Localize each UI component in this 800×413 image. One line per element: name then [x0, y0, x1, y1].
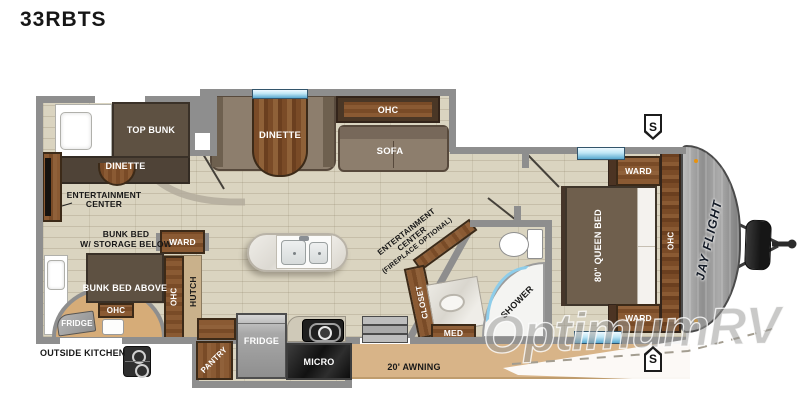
propane-tanks-icon	[744, 220, 772, 271]
hutch-label: HUTCH	[186, 270, 200, 314]
pillow-icon	[47, 260, 65, 290]
sink-basin-right-icon	[309, 242, 328, 264]
entry-step	[362, 334, 408, 343]
entry-step	[362, 316, 408, 325]
outside-sink-icon	[102, 319, 124, 335]
rear-wall	[36, 96, 43, 344]
marker-light-icon	[694, 319, 698, 323]
outside-kitchen-hatch-gap	[60, 338, 122, 344]
speaker-badge-top: S	[644, 114, 662, 140]
top-bunk: TOP BUNK	[112, 102, 190, 158]
floorplan-canvas: 33RBTS TOP BUNK DINETTE ENTERTAINMENT CE…	[0, 0, 800, 413]
page-title: 33RBTS	[20, 8, 107, 32]
bunk-dinette-label: DINETTE	[88, 160, 163, 172]
queen-bed	[565, 186, 657, 306]
bedroom-door-stub	[522, 148, 529, 168]
bedroom-window-bottom	[574, 331, 622, 344]
sofa-ohc-label: OHC	[355, 103, 421, 116]
tv-icon	[45, 158, 51, 216]
outside-cooktop-icon	[123, 346, 151, 377]
bedroom-ohc-label: OHC	[663, 222, 679, 260]
hutch-ohc-label: OHC	[166, 280, 182, 314]
entry-step	[362, 325, 408, 334]
ent-center-label: ENTERTAINMENT CENTER	[62, 189, 146, 211]
bunk-bed-above: BUNK BED ABOVE	[86, 253, 164, 303]
kitchen-fridge-label: FRIDGE	[236, 334, 287, 347]
outside-kitchen-label: OUTSIDE KITCHEN	[40, 347, 120, 359]
dinette-window	[252, 89, 308, 99]
outside-kitchen-ohc-label: OHC	[98, 304, 134, 317]
bedroom-ward-top-label: WARD	[616, 164, 661, 177]
bath-door-swing	[488, 198, 516, 220]
hitch-ball-icon	[788, 240, 797, 249]
sofa-label: SOFA	[357, 145, 423, 158]
speaker-badge-bottom: S	[644, 346, 662, 372]
queen-bed-label: 80" QUEEN BED	[590, 206, 606, 286]
awning-label: 20' AWNING	[384, 361, 444, 373]
dinette-bench-right	[323, 97, 334, 167]
bath-right-wall	[545, 220, 552, 344]
bedroom-door-swing	[527, 154, 559, 187]
ward-label: WARD	[160, 235, 205, 248]
outside-fridge-label: FRIDGE	[57, 317, 97, 329]
cooktop-icon	[302, 319, 344, 342]
faucet-icon	[299, 236, 309, 241]
sink-basin-left-icon	[281, 240, 306, 265]
bath-door-stub	[514, 206, 521, 226]
dinette-label: DINETTE	[248, 129, 312, 142]
bedroom-window-top	[577, 147, 625, 160]
marker-light-icon	[694, 159, 698, 163]
pillow-icon	[60, 112, 92, 150]
bedroom-ward-bottom-label: WARD	[616, 311, 661, 324]
dinette-slide-top-wall	[200, 89, 456, 96]
main-top-wall	[450, 147, 686, 154]
toilet-bowl-icon	[499, 232, 529, 257]
pantry-counter	[197, 318, 236, 340]
microwave-label: MICRO	[286, 355, 352, 368]
bunk-bed-storage-label: BUNK BED W/ STORAGE BELOW	[84, 229, 168, 251]
bunkroom-door-panel	[193, 131, 212, 152]
med-label: MED	[431, 326, 476, 339]
kitchen-slide-bottom-wall	[192, 381, 352, 388]
bed-pillows	[637, 188, 655, 304]
bath-top-wall	[470, 220, 552, 227]
dinette-slide-right-wall	[449, 89, 456, 152]
toilet-tank-icon	[527, 229, 543, 259]
